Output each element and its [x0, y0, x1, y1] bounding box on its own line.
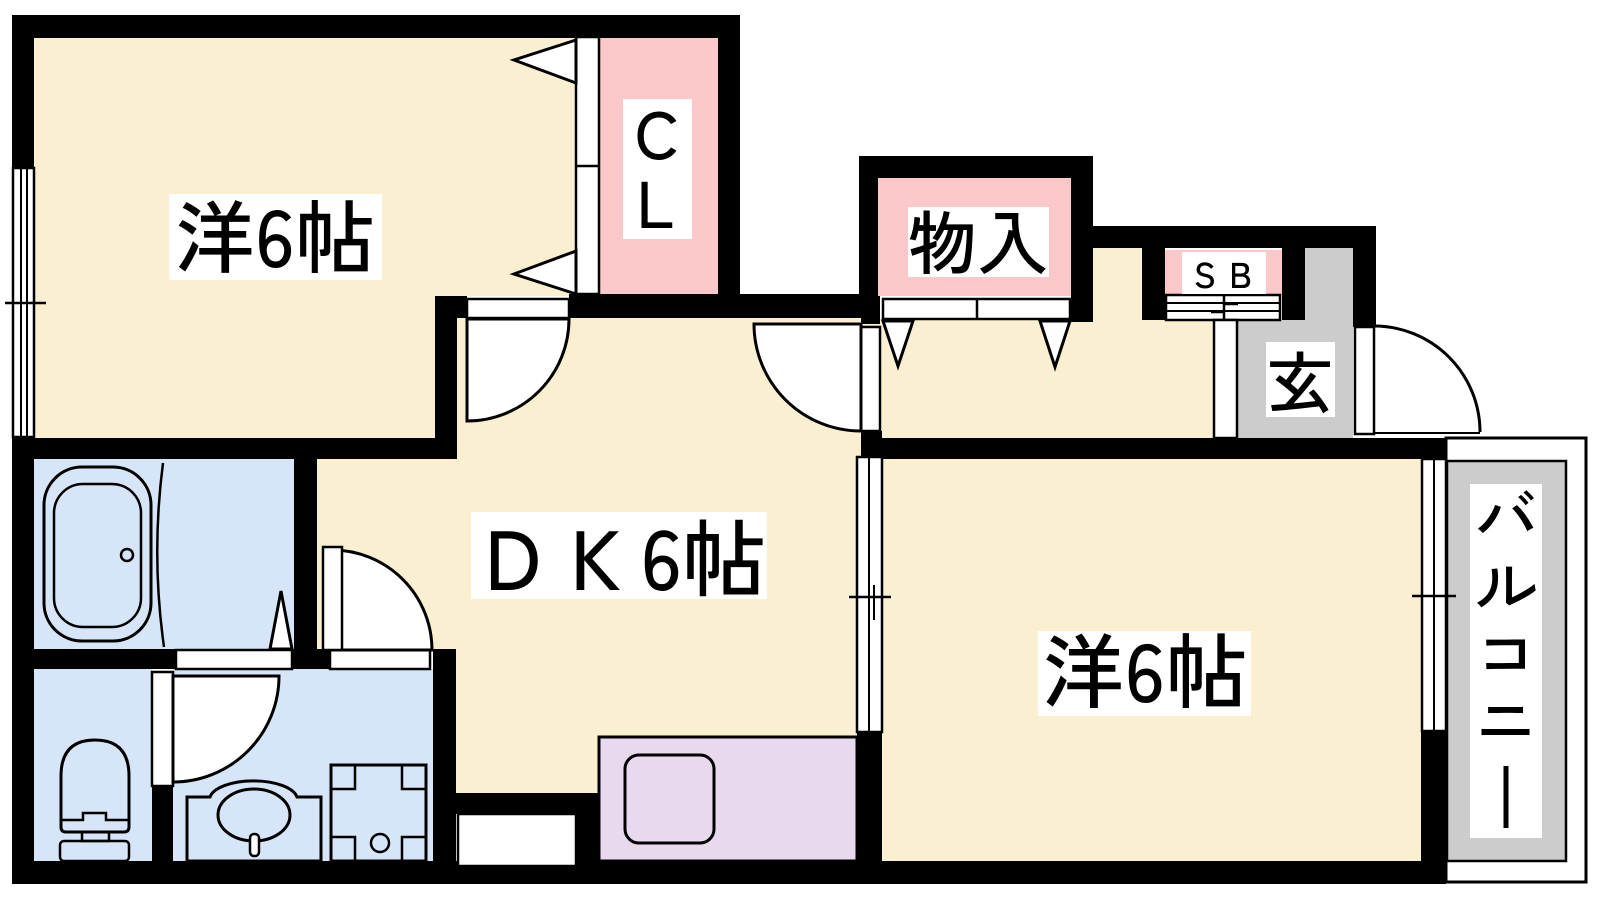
- svg-text:Ｌ: Ｌ: [624, 152, 690, 248]
- svg-text:ＳＢ: ＳＢ: [1187, 247, 1259, 299]
- svg-text:洋6帖: 洋6帖: [1043, 607, 1248, 726]
- svg-text:玄: 玄: [1266, 329, 1334, 428]
- svg-text:物入: 物入: [908, 189, 1048, 290]
- svg-text:ＤＫ6帖: ＤＫ6帖: [472, 494, 766, 615]
- svg-text:洋6帖: 洋6帖: [175, 175, 375, 291]
- svg-text:ニ: ニ: [1474, 673, 1538, 765]
